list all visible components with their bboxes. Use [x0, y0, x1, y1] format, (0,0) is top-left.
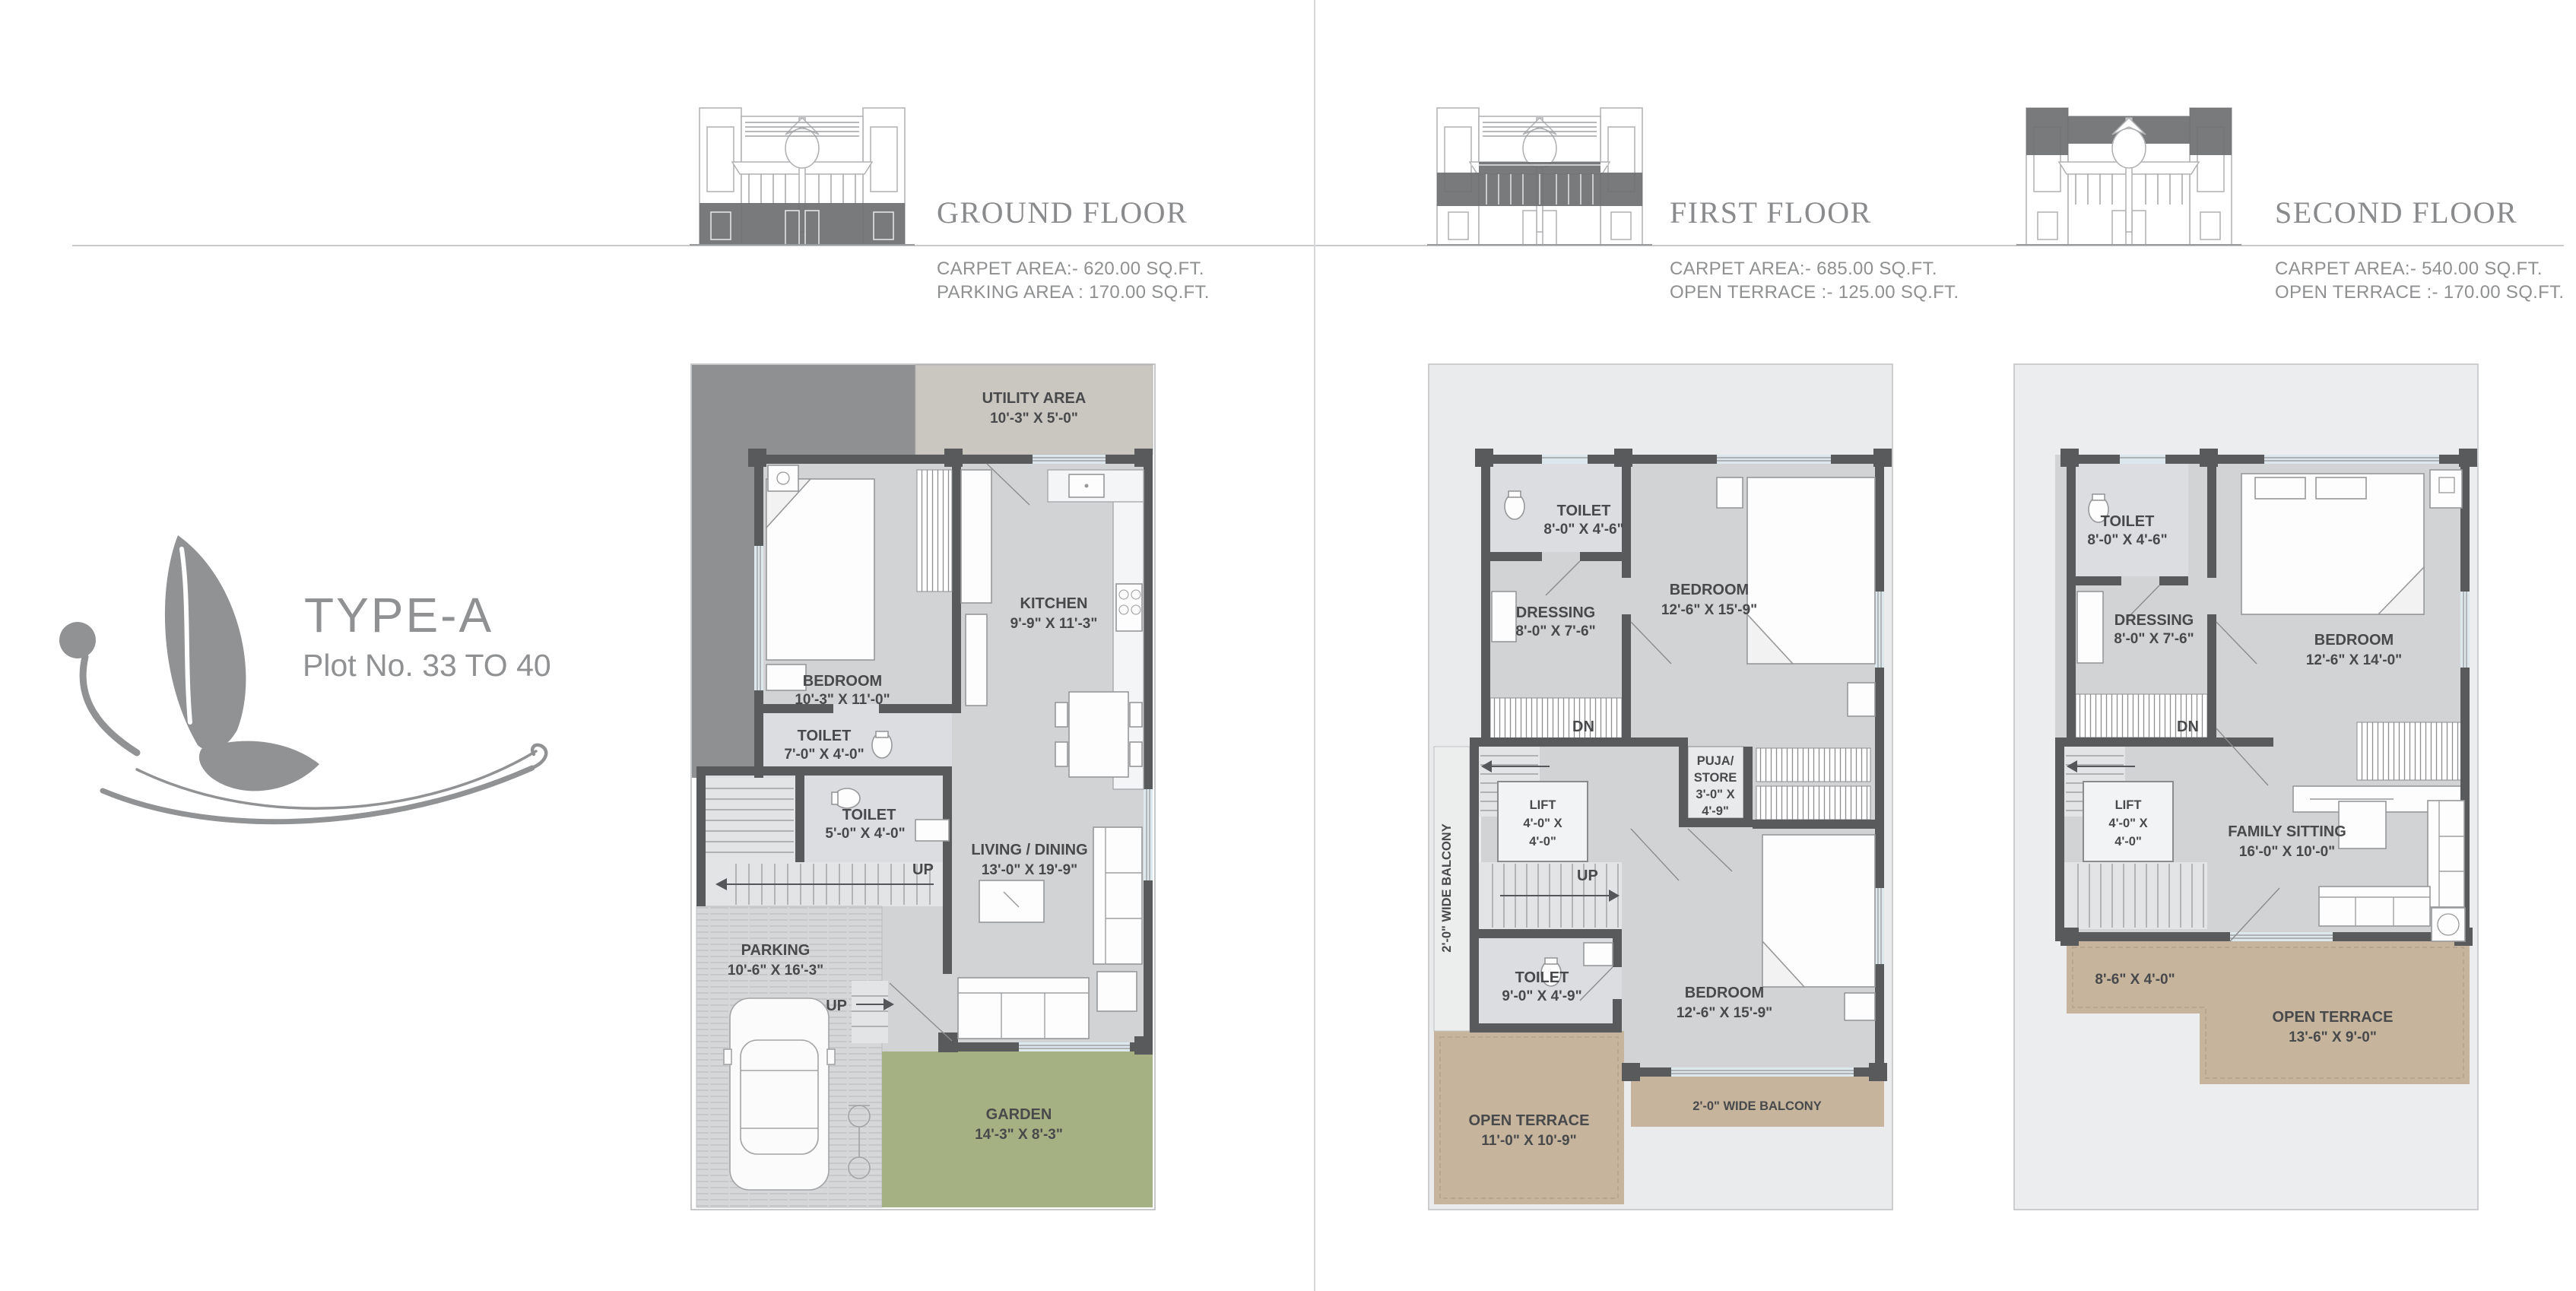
first-floor-elevation-icon	[1426, 89, 1654, 252]
room-label: FAMILY SITTING	[2228, 823, 2346, 840]
first-floor-title: FIRST FLOOR	[1670, 195, 1872, 230]
lift-label: LIFT	[2115, 798, 2142, 812]
carpet-area-line: CARPET AREA:- 540.00 SQ.FT.	[2275, 257, 2564, 281]
lift-dims: 4'-0" X	[1523, 817, 1562, 830]
carpet-area-line: CARPET AREA:- 685.00 SQ.FT.	[1670, 257, 1959, 281]
type-label: TYPE-A	[304, 587, 493, 643]
up-label: UP	[826, 998, 847, 1014]
wardrobe-icon	[1490, 698, 1622, 741]
ac-unit-icon	[768, 465, 798, 491]
wardrobe-icon	[1756, 748, 1870, 782]
room-dims: 7'-0" X 4'-0"	[784, 747, 864, 763]
room-dims: 11'-0" X 10'-9"	[1481, 1133, 1576, 1149]
room-label: OPEN TERRACE	[2273, 1009, 2394, 1026]
puja-dims: 3'-0" X	[1696, 788, 1734, 801]
puja-label: STORE	[1694, 771, 1737, 785]
room-label: BEDROOM	[1685, 985, 1764, 1001]
parking-area-line: PARKING AREA : 170.00 SQ.FT.	[937, 281, 1210, 304]
lift-dims: 4'-0"	[1529, 835, 1556, 849]
room-dims: 8'-0" X 7'-6"	[1515, 623, 1595, 639]
terrace-small-dims: 8'-6" X 4'-0"	[2095, 972, 2175, 988]
room-dims: 12'-6" X 15'-9"	[1677, 1005, 1772, 1021]
room-dims: 16'-0" X 10'-0"	[2239, 844, 2335, 860]
dn-label: DN	[1572, 718, 1594, 735]
section-divider	[1314, 0, 1315, 1291]
room-label: TOILET	[798, 728, 852, 744]
balcony-label: 2'-0" WIDE BALCONY	[1440, 823, 1454, 952]
room-label: DRESSING	[2114, 612, 2194, 629]
dn-label: DN	[2177, 718, 2199, 735]
utility-area-zone	[915, 365, 1153, 455]
second-floor-elevation-icon	[2015, 89, 2243, 252]
room-label: UTILITY AREA	[982, 390, 1087, 407]
room-label: OPEN TERRACE	[1469, 1112, 1590, 1129]
room-label: LIVING / DINING	[971, 842, 1087, 858]
floor-plan-sheet: { "logo": { "type": "TYPE-A", "plot": "P…	[0, 0, 2576, 1291]
room-label: DRESSING	[1516, 604, 1595, 621]
room-label: TOILET	[842, 807, 896, 823]
room-dims: 10'-3" X 5'-0"	[990, 411, 1078, 427]
ground-floor-plan: UP	[690, 363, 1156, 1210]
room-label: PARKING	[741, 942, 811, 959]
wc-icon	[872, 731, 892, 758]
room-dims: 12'-6" X 14'-0"	[2306, 652, 2402, 668]
room-label: BEDROOM	[803, 673, 882, 690]
lift-label: LIFT	[1530, 798, 1556, 812]
room-label: BEDROOM	[2314, 632, 2394, 649]
ground-floor-title: GROUND FLOOR	[937, 195, 1188, 230]
bathtub-icon	[2077, 592, 2103, 663]
room-dims: 5'-0" X 4'-0"	[825, 826, 905, 842]
room-label: KITCHEN	[1020, 595, 1088, 612]
terrace-area-line: OPEN TERRACE :- 170.00 SQ.FT.	[2275, 281, 2564, 304]
bed-icon	[766, 479, 874, 690]
room-dims: 8'-0" X 4'-6"	[2087, 532, 2167, 548]
room-label: BEDROOM	[1670, 582, 1749, 598]
puja-label: PUJA/	[1697, 754, 1734, 768]
ground-floor-areas: CARPET AREA:- 620.00 SQ.FT. PARKING AREA…	[937, 257, 1210, 304]
lift-dims: 4'-0"	[2114, 835, 2142, 849]
wardrobe-icon	[1756, 786, 1870, 820]
room-dims: 9'-9" X 11'-3"	[1010, 616, 1098, 632]
balcony-label: 2'-0" WIDE BALCONY	[1692, 1099, 1821, 1113]
room-dims: 13'-6" X 9'-0"	[2289, 1029, 2377, 1045]
wardrobe-icon	[2357, 722, 2462, 780]
first-floor-plan: TOILET 8'-0" X 4'-6" DRESSING 8'-0" X 7'…	[1428, 363, 1893, 1210]
first-floor-areas: CARPET AREA:- 685.00 SQ.FT. OPEN TERRACE…	[1670, 257, 1959, 304]
washbasin-icon	[1492, 592, 1516, 642]
room-label: TOILET	[2101, 513, 2155, 530]
carpet-area-line: CARPET AREA:- 620.00 SQ.FT.	[937, 257, 1210, 281]
ground-floor-elevation-icon	[688, 89, 916, 252]
up-label: UP	[912, 861, 934, 878]
room-dims: 8'-0" X 4'-6"	[1543, 522, 1623, 538]
room-label: TOILET	[1515, 969, 1569, 986]
room-dims: 12'-6" X 15'-9"	[1661, 602, 1757, 618]
room-dims: 14'-3" X 8'-3"	[975, 1127, 1063, 1143]
second-floor-areas: CARPET AREA:- 540.00 SQ.FT. OPEN TERRACE…	[2275, 257, 2564, 304]
room-dims: 10'-3" X 11'-0"	[795, 692, 890, 708]
second-floor-plan: TOILET 8'-0" X 4'-6" DRESSING 8'-0" X 7'…	[2013, 363, 2479, 1210]
car-icon	[724, 998, 835, 1190]
room-dims: 13'-0" X 19'-9"	[982, 862, 1077, 878]
terrace-area-line: OPEN TERRACE :- 125.00 SQ.FT.	[1670, 281, 1959, 304]
door-leaf-icon	[966, 614, 987, 706]
puja-dims: 4'-9"	[1702, 804, 1729, 818]
plot-number-label: Plot No. 33 TO 40	[303, 648, 551, 684]
room-label: TOILET	[1557, 503, 1611, 519]
room-label: GARDEN	[986, 1106, 1052, 1123]
room-dims: 8'-0" X 7'-6"	[2114, 631, 2194, 647]
room-dims: 9'-0" X 4'-9"	[1502, 988, 1581, 1004]
room-dims: 10'-6" X 16'-3"	[728, 963, 823, 979]
cupboard-icon	[961, 470, 991, 603]
up-label: UP	[1577, 868, 1598, 884]
second-floor-title: SECOND FLOOR	[2275, 195, 2517, 230]
lift-dims: 4'-0" X	[2108, 817, 2147, 830]
wardrobe-icon	[917, 470, 952, 592]
